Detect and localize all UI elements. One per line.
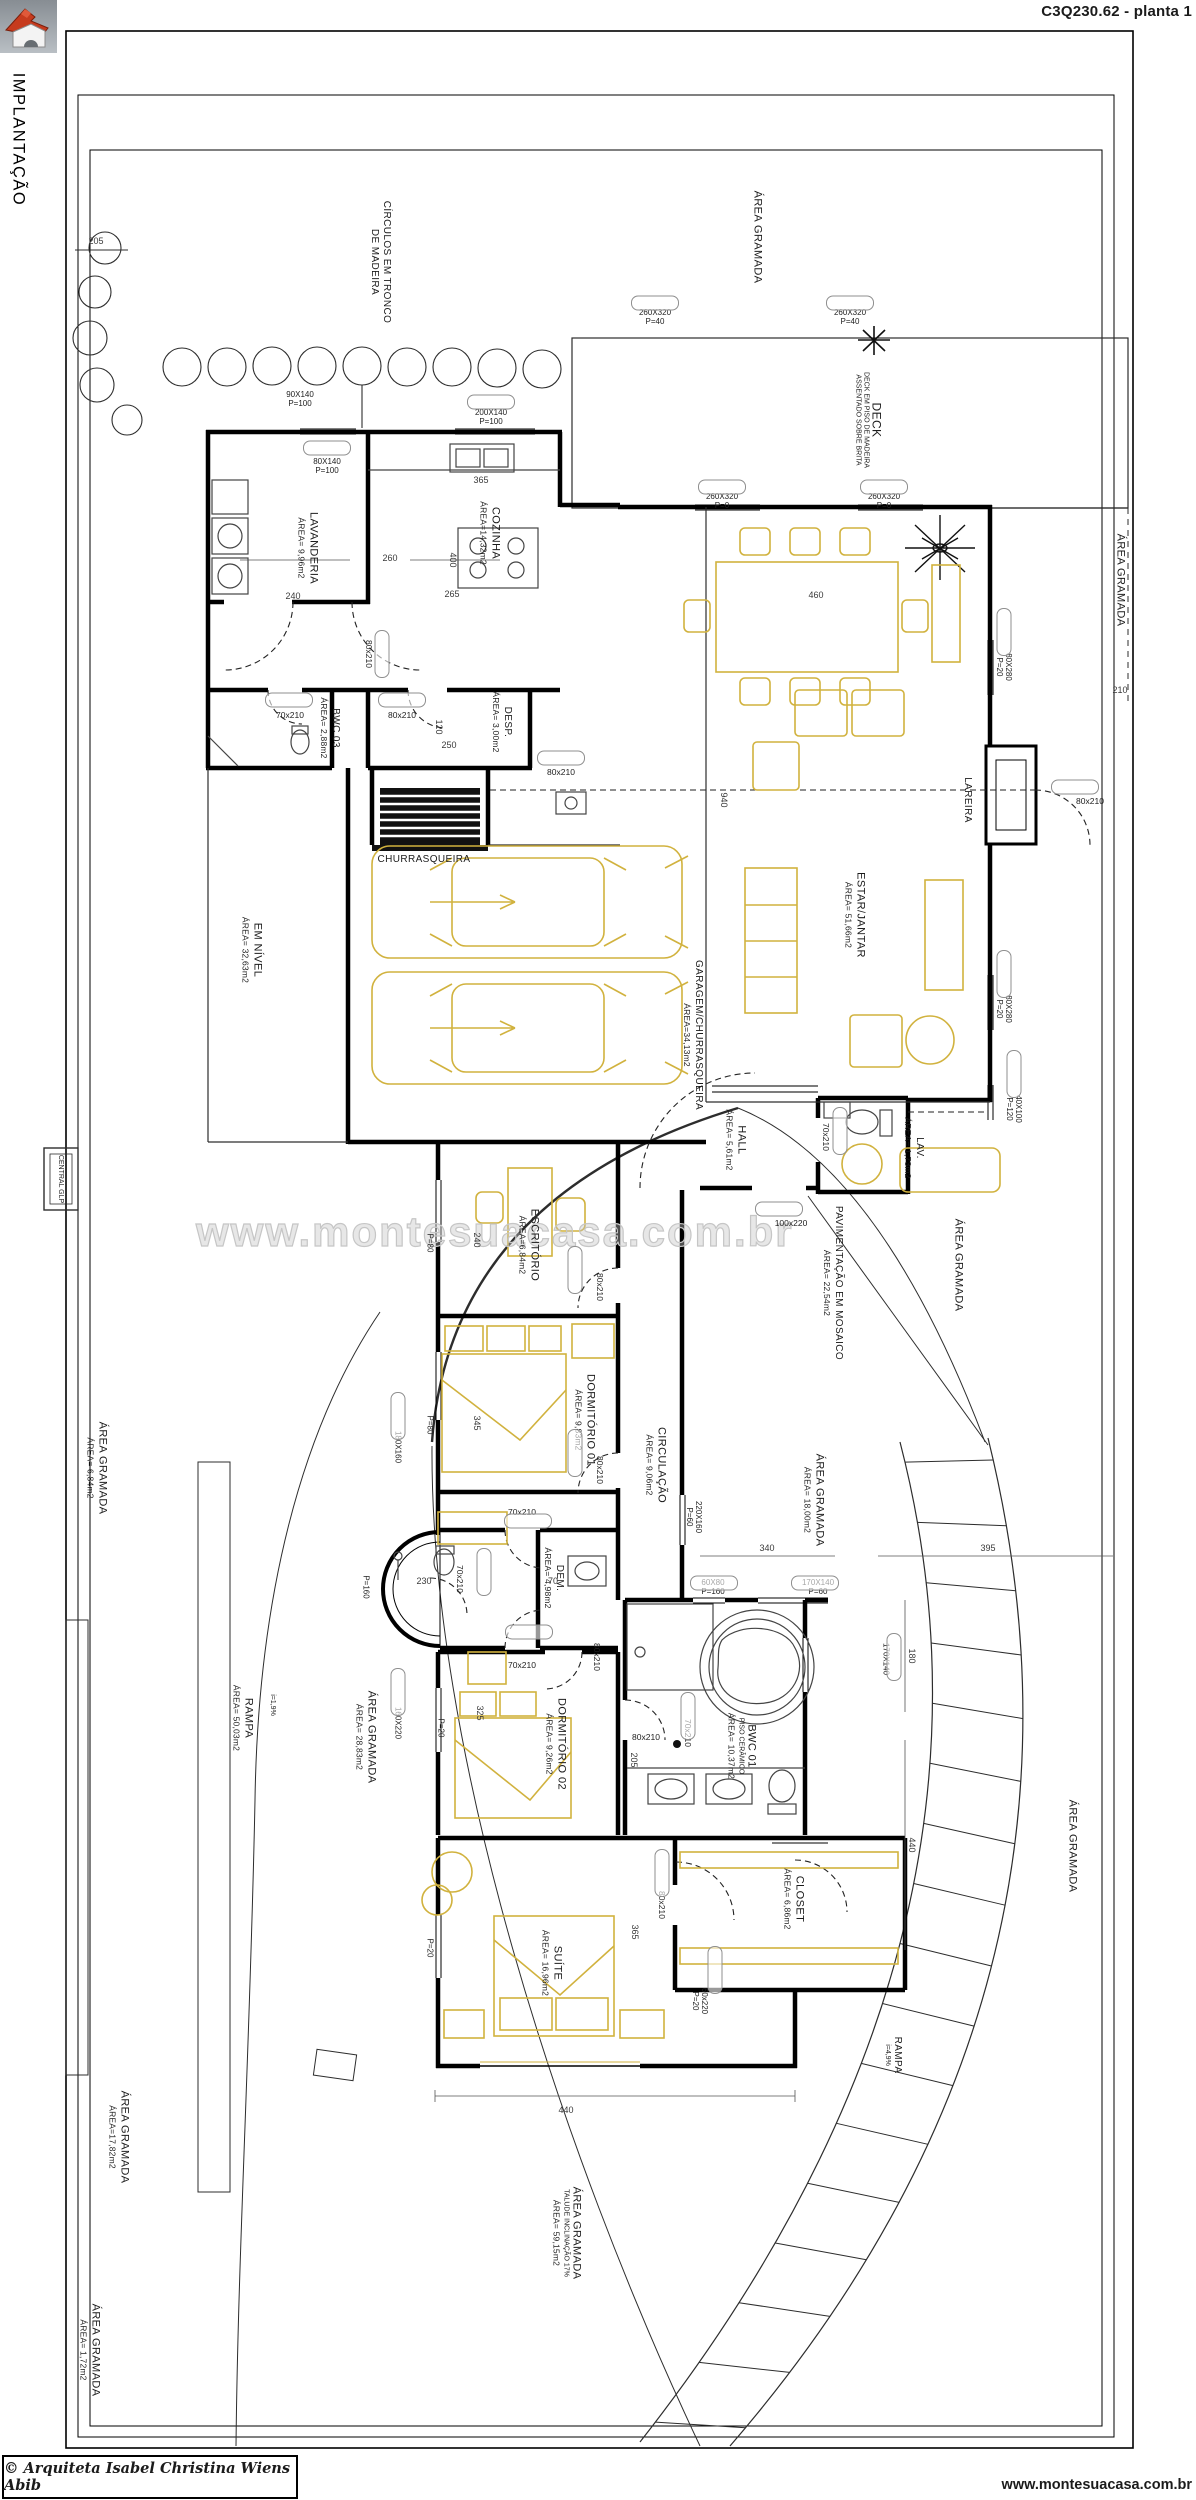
copyright-text: © Arquiteta Isabel Christina Wiens Abib — [4, 2460, 296, 2494]
label-bwc03: BWC 03 ÁREA= 2,88m2 — [319, 697, 341, 758]
dim: 325 — [475, 1705, 485, 1720]
site-linework — [66, 250, 1128, 2446]
window-spec: P=80 — [425, 1416, 434, 1435]
window-spec: 80X280P=20 — [995, 653, 1013, 681]
tag-pill — [265, 693, 313, 708]
tag-pill — [791, 1576, 839, 1591]
tag-pill — [826, 296, 874, 311]
tag-pill — [505, 1625, 553, 1640]
tag-pill — [303, 441, 351, 456]
tag-pill — [860, 480, 908, 495]
tag-pill — [391, 1668, 406, 1716]
label-area-gramada-blc: ÁREA GRAMADA ÁREA= 1,72m2 — [79, 2304, 102, 2397]
label-area-gramada-bottom: ÁREA GRAMADA TALUDE INCLINAÇÃO 17% ÁREA=… — [551, 2187, 582, 2280]
tag-pill — [477, 1548, 492, 1596]
label-garagem: GARAGEM/CHURRASQUEIRA ÁREA=34,13m2 — [682, 960, 704, 1110]
window-spec: P=20 — [425, 1939, 434, 1958]
dim: 210 — [1112, 685, 1127, 695]
tag-pill — [568, 1429, 583, 1477]
plant-icon — [905, 515, 975, 580]
window-spec: P=160 — [361, 1575, 370, 1598]
north-star-icon — [858, 326, 890, 355]
label-area-gramada-right2: ÁREA GRAMADA — [952, 1219, 965, 1312]
label-area-gramada-top: ÁREA GRAMADA — [751, 191, 764, 284]
window-spec: P=80 — [425, 1234, 434, 1253]
label-desp: DESP. ÁREA= 3,00m2 — [491, 691, 513, 752]
tag-pill — [504, 1514, 552, 1529]
label-suite: SUÍTE ÁREA= 16,96m2 — [541, 1930, 564, 1996]
label-central-glp: CENTRAL GLP — [56, 1155, 64, 1203]
dim: 265 — [444, 589, 459, 599]
dim: 250 — [441, 740, 456, 750]
window-spec: 260X320P=0 — [868, 492, 900, 510]
label-bwc01: BWC 01 PISO CERÂMICO ÁREA= 10,37m2 — [726, 1713, 757, 1779]
door-spec: 70x210 — [455, 1565, 465, 1593]
tag-pill — [391, 1392, 406, 1440]
door-spec: 80x210 — [595, 1273, 605, 1301]
label-dormitorio-02: DORMITÓRIO 02 ÁREA= 9,26m2 — [545, 1698, 568, 1790]
window-spec: 260X320P=0 — [706, 492, 738, 510]
label-escritorio: ESCRITÓRIO ÁREA=6,84m2 — [518, 1209, 541, 1281]
door-spec: 80x210 — [632, 1732, 660, 1742]
door-spec: 80x210 — [364, 640, 374, 668]
fireplace — [986, 746, 1036, 844]
label-churrasqueira: CHURRASQUEIRA — [378, 854, 471, 866]
dim: 440 — [558, 2105, 573, 2115]
bay-window — [383, 1532, 440, 1646]
label-area-gramada-right1: ÁREA GRAMADA — [1114, 534, 1127, 627]
tag-pill — [568, 1246, 583, 1294]
car-icons — [372, 846, 688, 1084]
curved-ramp-steps — [655, 1460, 1023, 2428]
tag-pill — [375, 630, 390, 678]
dim: 365 — [473, 475, 488, 485]
label-pavimentacao: PAVIMENTAÇÃO EM MOSAICO ÁREA= 22,54m2 — [822, 1206, 844, 1360]
window-spec: 200X140P=100 — [475, 408, 507, 426]
window-spec: 260X320P=40 — [639, 308, 671, 326]
dim: 180 — [907, 1648, 917, 1663]
label-area-gramada-redge: ÁREA GRAMADA — [1066, 1800, 1079, 1893]
house-logo-icon — [0, 0, 57, 58]
tag-pill — [681, 1692, 696, 1740]
furniture — [422, 528, 1000, 2062]
dim: 460 — [808, 590, 823, 600]
tag-pill — [887, 1633, 902, 1681]
website-link[interactable]: www.montesuacasa.com.br — [1002, 2477, 1192, 2493]
dim: 240 — [472, 1232, 482, 1247]
dim: 400 — [448, 552, 458, 567]
window-spec: 90X140P=100 — [286, 390, 314, 408]
dim: 345 — [472, 1415, 482, 1430]
label-lav: LAV. ÁREA= 1,73m2 — [903, 1117, 925, 1178]
label-area-gramada-left: ÁREA GRAMADA ÁREA= 6,84m2 — [86, 1422, 109, 1515]
sheet-side-label: IMPLANTAÇÃO — [9, 60, 28, 220]
sheet-title: C3Q230.62 - planta 1 — [1041, 3, 1192, 20]
dim: 205 — [88, 236, 103, 246]
grill — [372, 788, 488, 851]
tag-pill — [708, 1946, 723, 1994]
label-deck: DECK DECK EM PISO DE MADEIRA ASSENTADO S… — [853, 372, 884, 468]
dim: 70 — [548, 1576, 558, 1586]
label-area-gramada-rampa: ÁREA GRAMADA ÁREA= 28,83m2 — [355, 1691, 378, 1784]
window-spec: 60x220P=20 — [691, 1988, 709, 2014]
door-spec: 100x220 — [775, 1218, 808, 1228]
window-spec: 220X160P=60 — [685, 1501, 703, 1533]
label-rampa-right: RAMPA i=4,9% — [883, 2037, 903, 2074]
tag-pill — [698, 480, 746, 495]
dim: 395 — [980, 1543, 995, 1553]
tag-pill — [537, 751, 585, 766]
label-rampa-left: RAMPA ÁREA= 50,03m2 — [232, 1685, 255, 1751]
tag-pill — [655, 1849, 670, 1897]
door-spec: 70x210 — [276, 710, 304, 720]
dim: 940 — [719, 792, 729, 807]
window-spec: 40X100P=120 — [1005, 1095, 1023, 1123]
dim: 230 — [416, 1576, 431, 1586]
tag-pill — [833, 1107, 848, 1155]
tag-pill — [378, 693, 426, 708]
label-rampa-left-slope: i=1,9% — [268, 1694, 276, 1716]
dim: 205 — [629, 1752, 639, 1767]
dim: 260 — [382, 553, 397, 563]
tag-pill — [631, 296, 679, 311]
tag-pill — [997, 950, 1012, 998]
tag-pill — [1051, 780, 1099, 795]
tag-pill — [467, 395, 515, 410]
tag-pill — [1007, 1050, 1022, 1098]
floor-plan-sheet: www.montesuacasa.com.br IMPLANTAÇÃO C3Q2… — [0, 0, 1196, 2500]
window-spec: 80X140P=100 — [313, 457, 341, 475]
window-spec: 260X320P=40 — [834, 308, 866, 326]
label-lavanderia: LAVANDERIA ÁREA= 9,96m2 — [297, 512, 320, 584]
tag-pill — [755, 1202, 803, 1217]
label-lareira: LAREIRA — [961, 777, 973, 823]
label-em-nivel: EM NÍVEL ÁREA= 32,63m2 — [241, 917, 264, 983]
deck-outline — [572, 338, 1128, 508]
dim: 240 — [285, 591, 300, 601]
dim: 120 — [434, 719, 444, 734]
label-cozinha: COZINHA ÁREA=14,32m2 — [479, 501, 502, 565]
windows — [300, 429, 993, 1978]
label-circulacao: CIRCULAÇÃO ÁREA= 9,06m2 — [645, 1427, 668, 1503]
dim: 365 — [630, 1924, 640, 1939]
tag-pill — [690, 1576, 738, 1591]
door-spec: 70x210 — [508, 1660, 536, 1670]
door-spec: 70x210 — [821, 1123, 831, 1151]
window-spec: 80X280P=20 — [995, 995, 1013, 1023]
label-hall: HALL ÁREA= 5,61m2 — [725, 1109, 748, 1170]
door-spec: 80x210 — [595, 1456, 605, 1484]
door-spec: 80x210 — [592, 1643, 602, 1671]
window-spec: P=20 — [436, 1719, 445, 1738]
door-spec: 80x210 — [547, 767, 575, 777]
label-closet: CLOSET ÁREA= 6,86m2 — [783, 1868, 806, 1929]
label-estar-jantar: ESTAR/JANTAR ÁREA= 51,66m2 — [844, 872, 867, 958]
label-circulos-madeira: CÍRCULOS EM TRONCO DE MADEIRA — [368, 201, 392, 324]
label-area-gramada-bl: ÁREA GRAMADA ÁREA=17,82m2 — [108, 2091, 131, 2184]
label-area-gramada-mid: ÁREA GRAMADA ÁREA= 18,00m2 — [803, 1454, 826, 1547]
dim: 340 — [759, 1543, 774, 1553]
dim: 440 — [907, 1837, 917, 1852]
architect-stamp: © Arquiteta Isabel Christina Wiens Abib — [2, 2455, 298, 2499]
tag-pill — [997, 608, 1012, 656]
door-spec: 80x210 — [388, 710, 416, 720]
door-spec: 80x210 — [1076, 796, 1104, 806]
